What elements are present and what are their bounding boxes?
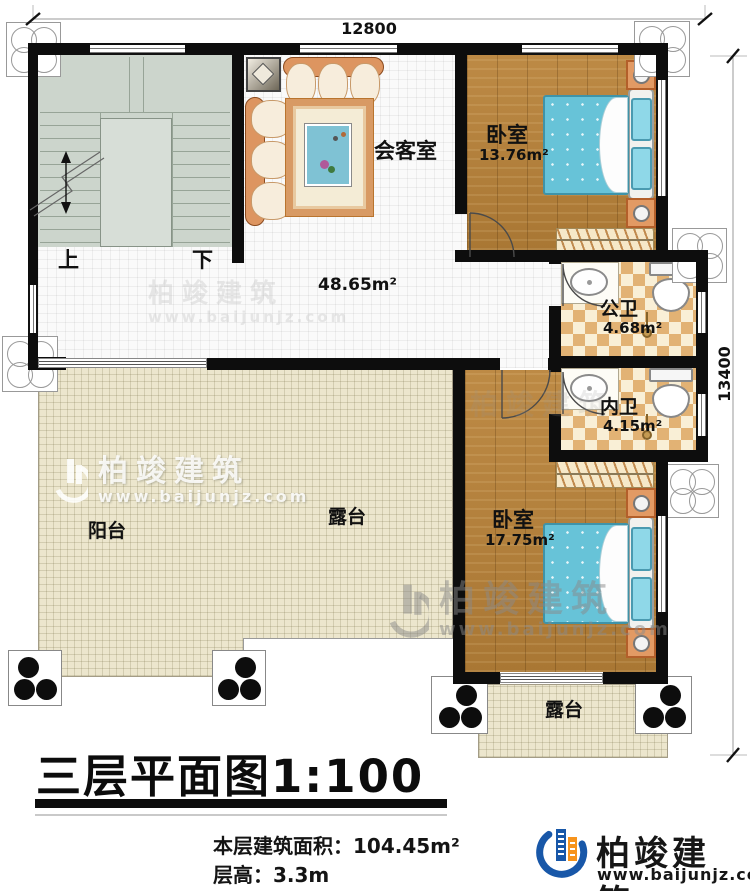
wardrobe [556, 228, 654, 252]
area-label-hall: 48.65m² [318, 277, 397, 294]
wardrobe [556, 460, 654, 488]
window-icon [522, 43, 618, 55]
sliding-door-icon [38, 358, 207, 368]
bed-top-pillow [631, 147, 652, 190]
area-label-bedroom-bottom: 17.75m² [485, 533, 555, 548]
plan-title: 三层平面图1:100 [36, 740, 424, 805]
stair-landing [100, 118, 172, 247]
sliding-door-icon [500, 673, 603, 683]
pillar-icon [212, 650, 266, 706]
floor-height-text: 层高：3.3m [213, 859, 329, 888]
window-icon [300, 43, 397, 55]
brand-website: www.baijunjz.com [597, 865, 750, 884]
window-icon [696, 394, 708, 436]
title-underline-thin [35, 814, 447, 816]
stair-up-label: 上 [58, 250, 79, 271]
window-icon [656, 80, 668, 196]
room-label-meeting: 会客室 [374, 141, 437, 162]
area-label-bath-public: 4.68m² [603, 321, 662, 336]
window-icon [696, 292, 708, 333]
bed-bottom-pillow [631, 527, 652, 571]
bed-top-pillow [631, 98, 652, 141]
room-label-bedroom-bottom: 卧室 [492, 510, 534, 531]
dimension-right-label: 13400 [717, 329, 733, 419]
room-label-bedroom-top: 卧室 [486, 125, 528, 146]
room-label-bath-private: 内卫 [600, 398, 638, 417]
building-area-text: 本层建筑面积：104.45m² [213, 830, 460, 859]
column-icon [665, 464, 719, 518]
room-label-bath-public: 公卫 [600, 300, 638, 319]
window-icon [90, 43, 185, 55]
room-label-terrace-left: 露台 [328, 508, 366, 527]
sink-icon [570, 268, 608, 296]
pillar-icon [635, 676, 692, 734]
window-icon [28, 285, 38, 333]
room-label-terrace-bottom: 露台 [545, 701, 583, 720]
pillar-icon [8, 650, 62, 706]
area-label-bath-private: 4.15m² [603, 419, 662, 434]
pillar-icon [431, 676, 488, 734]
toilet-icon [649, 368, 693, 382]
title-underline [35, 799, 447, 808]
stair-down-label: 下 [192, 250, 213, 271]
brand-logo-icon [536, 824, 590, 882]
nightstand [626, 628, 656, 658]
dimension-top-label: 12800 [309, 21, 429, 37]
brand-logo: 柏竣建筑 www.baijunjz.com [536, 824, 746, 886]
nightstand [626, 488, 656, 518]
floorplan-page: 柏竣建筑 www.baijunjz.com 柏竣建筑 www.baijunjz.… [0, 0, 750, 891]
terrace-step [243, 638, 454, 678]
nightstand [626, 198, 656, 228]
room-label-balcony: 阳台 [88, 522, 126, 541]
bed-bottom-pillow [631, 577, 652, 621]
window-icon [656, 516, 668, 612]
area-label-bedroom-top: 13.76m² [479, 148, 549, 163]
